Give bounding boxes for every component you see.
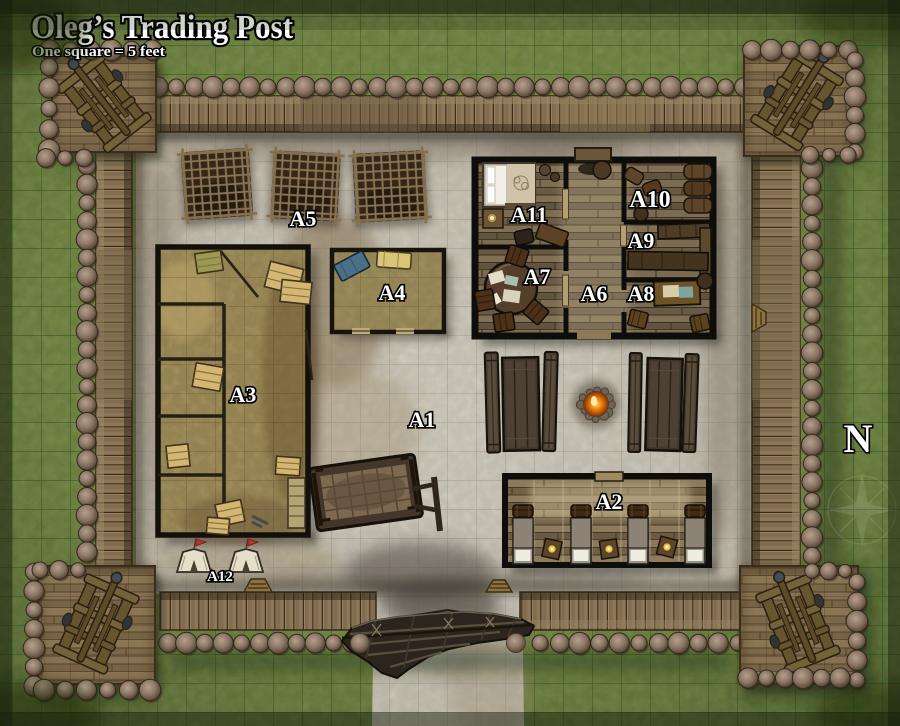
svg-text:A4: A4 (379, 280, 406, 305)
svg-text:A2: A2 (596, 489, 623, 514)
svg-text:A7: A7 (524, 264, 551, 289)
svg-text:A3: A3 (230, 382, 257, 407)
svg-text:A6: A6 (581, 281, 608, 306)
svg-text:A11: A11 (511, 202, 548, 227)
svg-text:A1: A1 (409, 407, 436, 432)
svg-text:A10: A10 (629, 187, 670, 213)
svg-text:A5: A5 (290, 206, 317, 231)
svg-text:A9: A9 (628, 228, 655, 253)
svg-text:A8: A8 (628, 281, 655, 306)
svg-text:A12: A12 (207, 569, 233, 585)
svg-text:N: N (844, 416, 873, 461)
